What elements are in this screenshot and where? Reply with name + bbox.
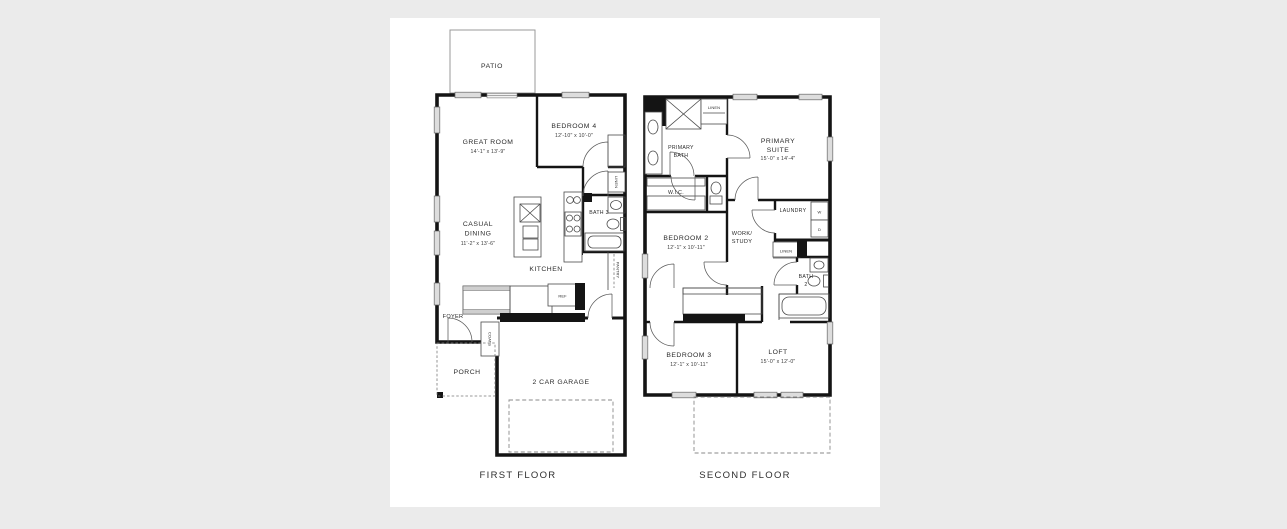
- bedroom2-dims: 12'-1" x 10'-11": [667, 245, 705, 251]
- primary-bath-label-1: PRIMARY: [668, 145, 694, 151]
- linen-label: LINEN: [614, 176, 619, 188]
- linen-upper-label: LINEN: [708, 105, 720, 110]
- porch-post: [437, 392, 443, 398]
- floorplan-canvas: PATIO GREAT ROOM 14'-1" x 13'-9" BEDROOM…: [0, 0, 1287, 529]
- primary-suite-label-1: PRIMARY: [761, 138, 795, 145]
- great-room-label: GREAT ROOM: [463, 139, 514, 146]
- second-floor-caption: SECOND FLOOR: [699, 470, 791, 481]
- wall-fill: [575, 283, 585, 310]
- floorplan-page: PATIO GREAT ROOM 14'-1" x 13'-9" BEDROOM…: [0, 0, 1287, 529]
- dryer-label: D: [818, 227, 821, 232]
- work-study-label-2: STUDY: [732, 239, 752, 245]
- loft-dims: 15'-0" x 12'-0": [761, 359, 796, 365]
- garage-label: 2 CAR GARAGE: [533, 379, 590, 386]
- bath2-label-2: 2: [804, 282, 807, 288]
- bath3-label: BATH 3: [589, 210, 609, 216]
- bedroom3-label: BEDROOM 3: [666, 352, 711, 359]
- bedroom4-label: BEDROOM 4: [551, 123, 596, 130]
- bath2-label-1: BATH: [799, 274, 814, 280]
- bedroom3-dims: 12'-1" x 10'-11": [670, 362, 708, 368]
- washer-label: W: [818, 210, 822, 215]
- primary-suite-label-2: SUITE: [767, 147, 790, 154]
- porch-label: PORCH: [453, 369, 480, 376]
- wic-label: W.I.C.: [668, 190, 684, 196]
- bedroom2-label: BEDROOM 2: [663, 235, 708, 242]
- great-room-dims: 14'-1" x 13'-9": [471, 149, 506, 155]
- laundry-label: LAUNDRY: [780, 208, 807, 214]
- pantry-label: PANTRY: [616, 262, 621, 279]
- coats-label: COATS: [488, 332, 493, 346]
- casual-dining-label-2: DINING: [465, 231, 492, 238]
- linen-mid-label: LINEN: [780, 249, 792, 254]
- work-study-label-1: WORK/: [732, 231, 753, 237]
- first-floor-caption: FIRST FLOOR: [480, 470, 557, 481]
- kitchen-label: KITCHEN: [529, 266, 562, 273]
- foyer-label: FOYER: [443, 314, 464, 320]
- primary-suite-dims: 15'-0" x 14'-4": [761, 156, 796, 162]
- patio-outline: [450, 30, 535, 93]
- loft-label: LOFT: [768, 349, 787, 356]
- casual-dining-dims: 11'-2" x 13'-6": [461, 241, 496, 247]
- bedroom4-dims: 12'-10" x 10'-0": [555, 133, 593, 139]
- primary-bath-label-2: BATH: [674, 153, 689, 159]
- patio-label: PATIO: [481, 63, 503, 70]
- wall-fill: [797, 241, 807, 257]
- ref-label: REF: [558, 294, 567, 299]
- casual-dining-label-1: CASUAL: [463, 221, 493, 228]
- wall-fill: [583, 193, 592, 202]
